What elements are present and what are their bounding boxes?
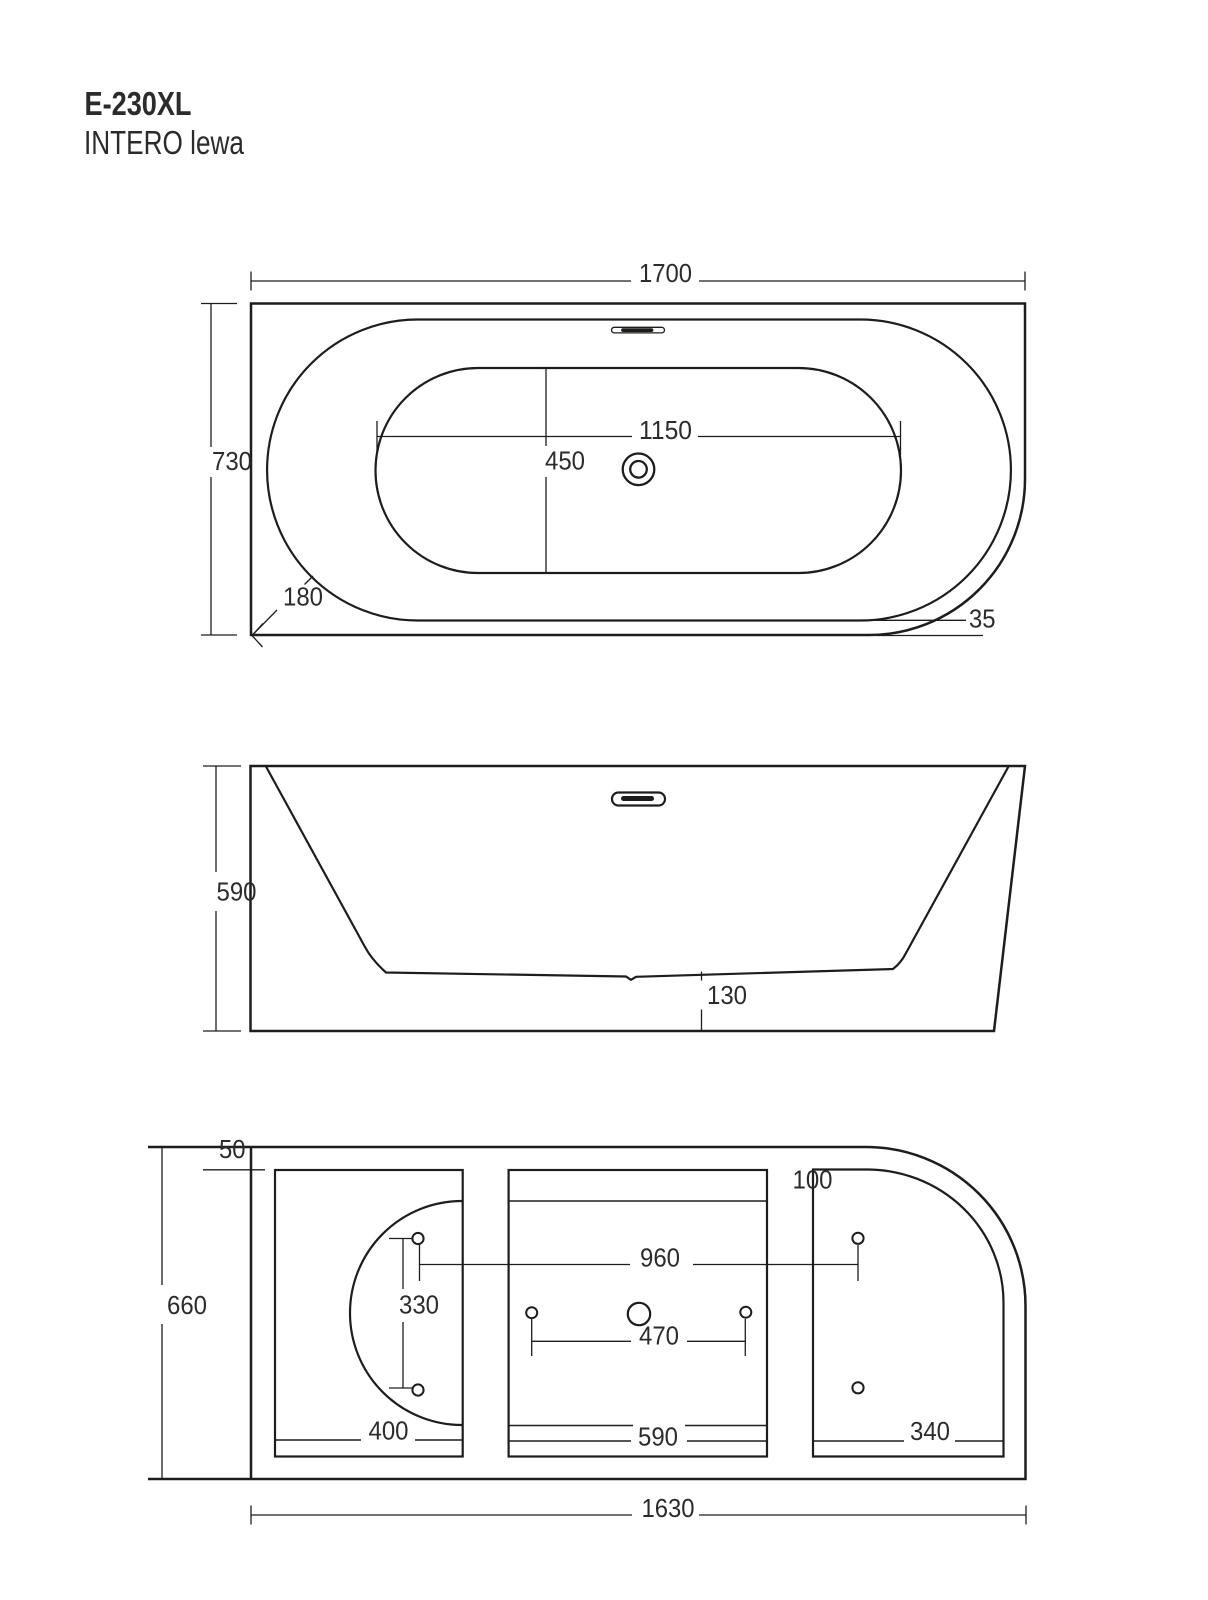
svg-text:340: 340 (910, 1416, 950, 1446)
svg-text:960: 960 (640, 1243, 680, 1273)
svg-text:660: 660 (167, 1290, 207, 1320)
svg-text:590: 590 (217, 877, 257, 907)
svg-text:50: 50 (219, 1134, 246, 1164)
svg-text:1630: 1630 (642, 1493, 695, 1523)
svg-text:330: 330 (399, 1290, 439, 1320)
svg-text:1700: 1700 (639, 258, 692, 288)
svg-text:590: 590 (638, 1422, 678, 1452)
svg-text:180: 180 (283, 582, 323, 612)
svg-text:35: 35 (969, 604, 996, 634)
svg-text:100: 100 (793, 1165, 833, 1195)
svg-text:1150: 1150 (639, 415, 692, 445)
svg-text:400: 400 (369, 1416, 409, 1446)
svg-text:450: 450 (545, 446, 585, 476)
svg-text:INTERO lewa: INTERO lewa (84, 124, 245, 161)
svg-text:E-230XL: E-230XL (85, 85, 192, 122)
svg-text:470: 470 (639, 1321, 679, 1351)
svg-text:130: 130 (707, 980, 747, 1010)
svg-text:730: 730 (212, 446, 252, 476)
